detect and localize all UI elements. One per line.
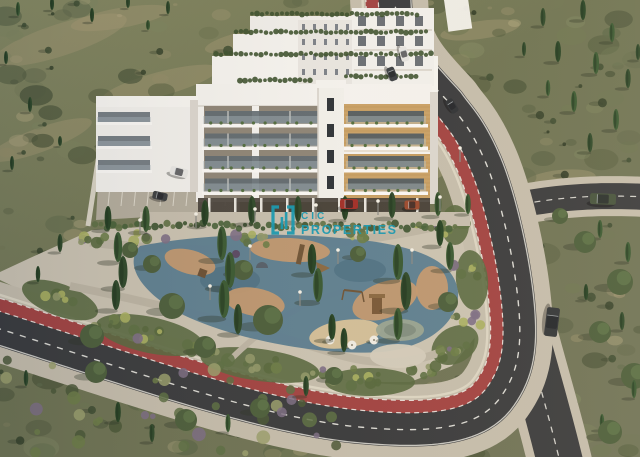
scene-canvas bbox=[0, 0, 640, 457]
green-suv-side-road bbox=[586, 193, 616, 208]
architectural-render: CIC PROPERTIES bbox=[0, 0, 640, 457]
red-car-garage bbox=[337, 199, 358, 212]
plaza bbox=[370, 344, 426, 368]
